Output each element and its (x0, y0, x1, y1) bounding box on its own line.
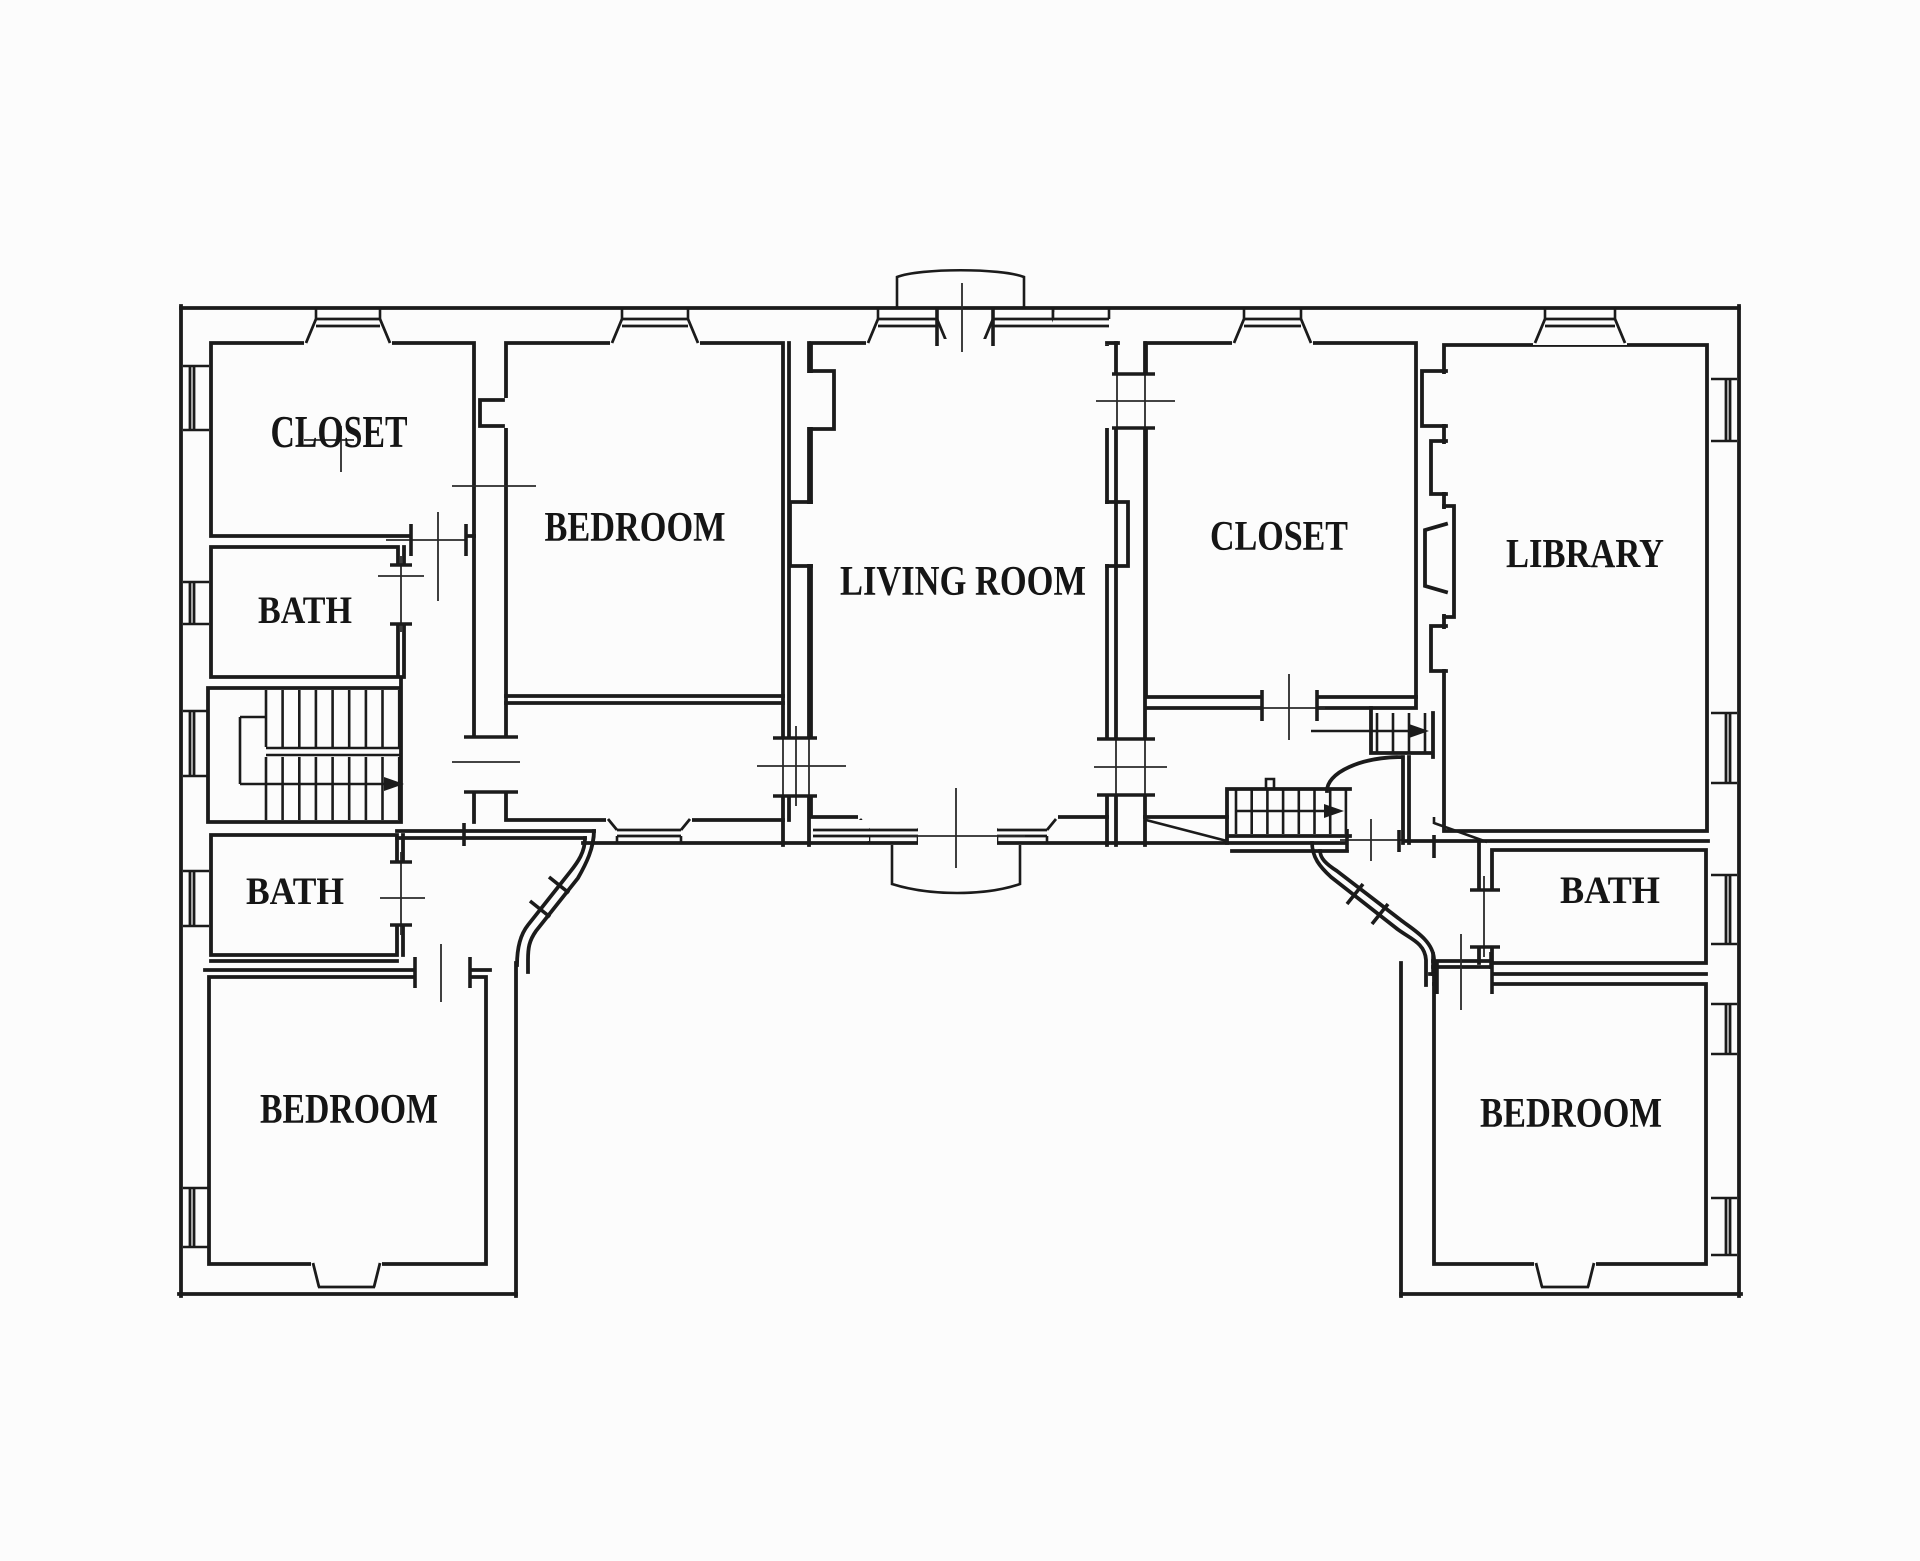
svg-text:BEDROOM: BEDROOM (260, 1087, 438, 1133)
svg-text:BEDROOM: BEDROOM (545, 505, 726, 551)
svg-text:CLOSET: CLOSET (271, 406, 408, 457)
svg-text:BATH: BATH (1560, 869, 1660, 912)
svg-text:LIVING ROOM: LIVING ROOM (840, 559, 1086, 605)
svg-text:BATH: BATH (246, 870, 344, 913)
svg-text:LIBRARY: LIBRARY (1506, 530, 1664, 576)
svg-text:BATH: BATH (258, 589, 352, 632)
svg-text:CLOSET: CLOSET (1210, 514, 1348, 560)
svg-text:BEDROOM: BEDROOM (1480, 1091, 1662, 1137)
